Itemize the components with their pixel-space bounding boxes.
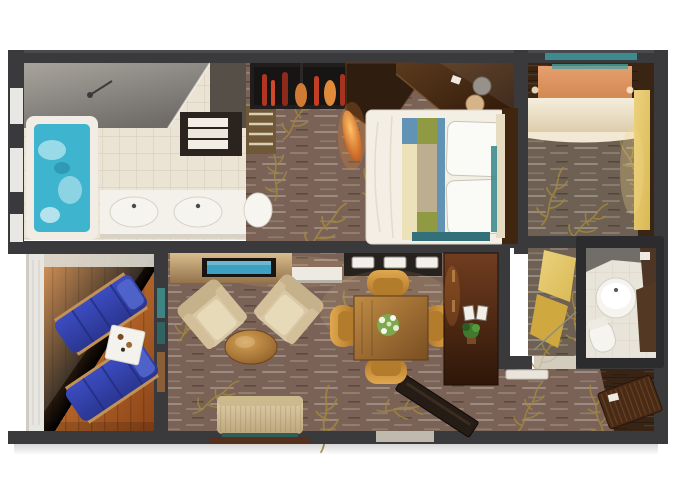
plate <box>352 257 374 268</box>
floorplan-image <box>0 0 680 486</box>
dining-chair <box>365 358 407 384</box>
toilet <box>244 193 272 227</box>
balcony-door-glass <box>157 352 165 392</box>
balcony-door-glass <box>157 322 165 344</box>
faucet <box>132 204 136 208</box>
balcony-table <box>105 325 145 365</box>
plate <box>416 257 438 268</box>
picture-frame <box>476 305 488 320</box>
king-bed <box>366 110 506 244</box>
coffee-table <box>225 330 277 364</box>
tv-console <box>170 253 292 283</box>
bathtub <box>26 116 98 240</box>
threshold <box>534 356 576 369</box>
slatted-bench <box>246 106 276 154</box>
cream-wardrobe <box>528 98 638 143</box>
towel-counter <box>180 112 242 156</box>
tall-cabinet <box>444 253 498 385</box>
hull-window <box>10 214 23 242</box>
vanity-sinks <box>100 190 246 238</box>
floorplan-svg <box>0 0 680 486</box>
red-vase <box>262 74 267 106</box>
amber-vase <box>324 80 336 106</box>
bar-counter <box>292 267 342 283</box>
dining-chair <box>330 305 356 347</box>
red-vase <box>282 72 288 106</box>
amber-vase <box>295 83 307 107</box>
red-vase <box>271 80 275 106</box>
hull-window <box>10 88 23 124</box>
door-mat <box>506 370 548 379</box>
dining-chair <box>367 270 409 296</box>
plate <box>384 257 406 268</box>
bed-runner <box>402 118 445 240</box>
hull-window <box>10 148 23 192</box>
picture-frame <box>463 305 475 320</box>
threshold <box>376 431 434 442</box>
display-shelf <box>250 63 352 109</box>
dining-table <box>354 296 428 360</box>
red-vase <box>340 74 345 106</box>
flower-centerpiece <box>377 314 399 336</box>
stool <box>473 77 491 95</box>
bed-bench <box>412 232 490 241</box>
red-vase <box>314 76 319 106</box>
faucet <box>196 204 200 208</box>
balcony-door-glass <box>157 288 165 318</box>
drop-shadow <box>14 444 658 455</box>
window-strip <box>545 53 637 60</box>
sofa <box>210 396 310 443</box>
